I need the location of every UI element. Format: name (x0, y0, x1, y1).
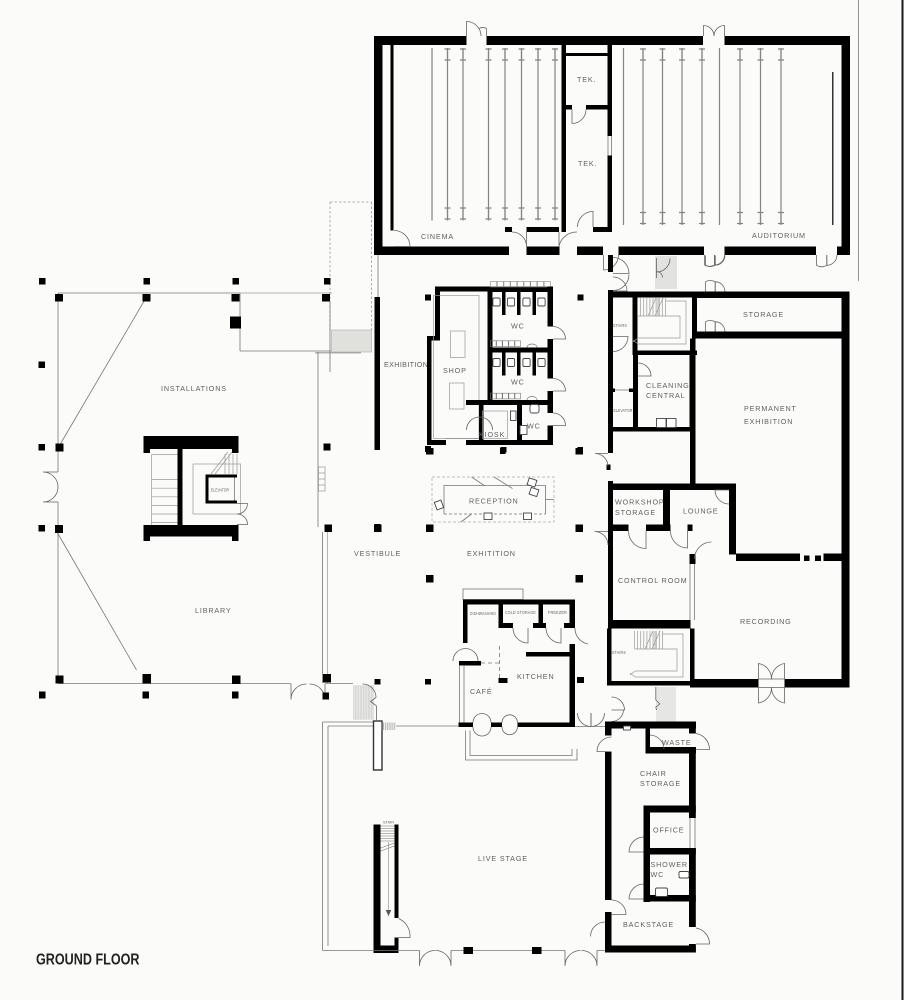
svg-text:STORAGE: STORAGE (640, 779, 681, 788)
svg-text:KIOSK: KIOSK (479, 430, 505, 439)
svg-text:SHOP: SHOP (443, 366, 467, 375)
svg-text:WC: WC (511, 378, 525, 387)
svg-text:RECORDING: RECORDING (740, 617, 792, 626)
svg-text:PERMANENT: PERMANENT (744, 404, 797, 413)
svg-text:STORAGE: STORAGE (743, 310, 784, 319)
svg-text:VESTIBULE: VESTIBULE (354, 549, 401, 558)
svg-text:DISHWASHING: DISHWASHING (470, 611, 496, 616)
svg-text:WORKSHOP: WORKSHOP (615, 498, 665, 507)
svg-text:CLEANING: CLEANING (646, 381, 690, 390)
svg-text:TEK.: TEK. (578, 159, 597, 168)
svg-text:TEK.: TEK. (577, 75, 596, 84)
svg-text:AUDITORIUM: AUDITORIUM (752, 231, 806, 240)
svg-text:CINEMA: CINEMA (421, 232, 454, 241)
svg-text:CHAIR: CHAIR (640, 769, 667, 778)
svg-text:ELEVATOR: ELEVATOR (211, 488, 229, 493)
svg-text:ELEVATOR: ELEVATOR (614, 408, 633, 413)
svg-text:SHOWER: SHOWER (651, 860, 688, 869)
svg-text:WC: WC (511, 322, 525, 331)
svg-text:RECEPTION: RECEPTION (469, 497, 519, 506)
svg-text:WC: WC (651, 870, 665, 879)
svg-text:STAIR: STAIR (383, 821, 394, 825)
svg-text:EXHIBITION: EXHIBITION (384, 360, 428, 369)
svg-text:OFFICE: OFFICE (653, 826, 684, 835)
svg-text:CENTRAL: CENTRAL (646, 391, 686, 400)
svg-text:STAIRS: STAIRS (613, 323, 627, 328)
svg-text:LIBRARY: LIBRARY (195, 606, 232, 615)
svg-text:KITCHEN: KITCHEN (517, 672, 555, 681)
svg-text:EXHIBITION: EXHIBITION (744, 417, 793, 426)
svg-text:COLD STORAGE: COLD STORAGE (505, 610, 536, 615)
svg-text:WASTE: WASTE (662, 738, 692, 747)
svg-text:CONTROL ROOM: CONTROL ROOM (618, 576, 687, 585)
svg-text:EXHITITION: EXHITITION (467, 549, 516, 558)
svg-text:STORAGE: STORAGE (615, 508, 656, 517)
svg-text:LOUNGE: LOUNGE (683, 507, 718, 516)
svg-text:CAFÉ: CAFÉ (470, 687, 493, 696)
svg-text:FREEZER: FREEZER (548, 610, 567, 615)
svg-text:WC: WC (527, 422, 541, 431)
svg-text:INSTALLATIONS: INSTALLATIONS (161, 384, 227, 393)
svg-text:LIVE STAGE: LIVE STAGE (478, 854, 528, 863)
svg-text:STAIRS: STAIRS (612, 650, 626, 655)
svg-text:BACKSTAGE: BACKSTAGE (623, 920, 674, 929)
svg-text:GROUND FLOOR: GROUND FLOOR (36, 952, 140, 969)
